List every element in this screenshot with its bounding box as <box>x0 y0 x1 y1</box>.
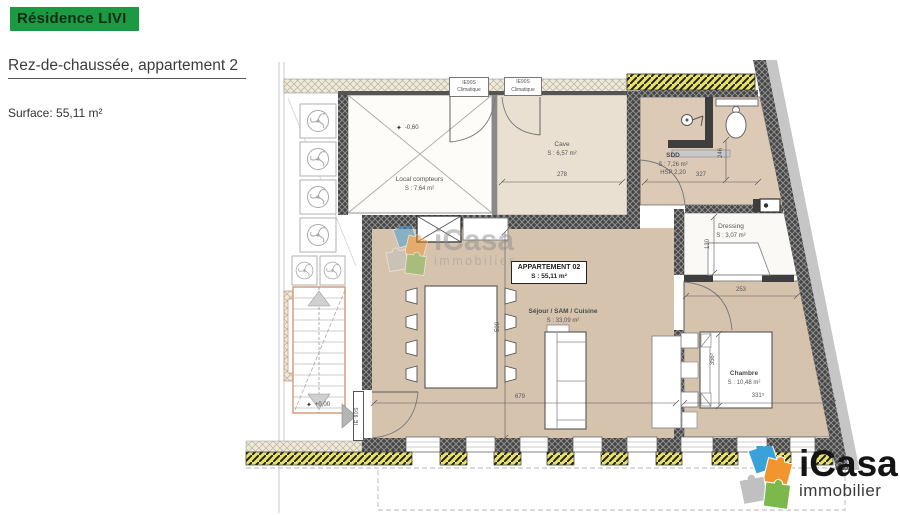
dim-sejour-height: 500 <box>495 312 501 342</box>
entry-door-label: IE 90S <box>353 391 364 441</box>
sofa-icon <box>545 325 586 429</box>
dim-sdd-height: 246 <box>718 138 724 168</box>
watermark: iCasa immobilier <box>384 226 516 276</box>
agency-logo: iCasa immobilier <box>736 446 898 510</box>
room-label-sejour: Séjour / SAM / Cuisine S : 33,09 m² <box>516 308 610 325</box>
logo-subtitle: immobilier <box>799 481 898 501</box>
level-marker-entrance: ✦ +0,00 <box>306 401 330 409</box>
dim-cave-width: 278 <box>542 172 582 178</box>
fan-icon <box>308 225 329 246</box>
room-label-cave: Cave S : 6,57 m² <box>527 141 597 158</box>
puzzle-logo-icon <box>384 226 430 276</box>
bench-icon <box>682 412 697 428</box>
sideboard-icon <box>652 336 681 428</box>
room-label-chambre: Chambre S : 10,48 m² <box>713 370 775 387</box>
dim-dressing-height: 130 <box>705 229 711 259</box>
fan-icon <box>324 262 341 279</box>
door-label-1: IE90SClimatique <box>449 77 489 97</box>
level-marker-icon: ✦ <box>306 401 312 409</box>
fan-icon <box>308 111 329 132</box>
apartment-label-box: APPARTEMENT 02 S : 55,11 m² <box>511 261 587 284</box>
dim-sejour-width: 679 <box>500 394 540 400</box>
level-marker-icon: ✦ <box>396 124 402 132</box>
room-label-local-compteurs: Local compteurs S : 7,64 m² <box>372 176 467 193</box>
watermark-subtitle: immobilier <box>434 254 516 268</box>
logo-brand: iCasa <box>799 446 898 481</box>
level-marker-local: ✦ -0,60 <box>396 124 419 132</box>
floor-plan-page: Résidence LIVI Rez-de-chaussée, appartem… <box>0 0 900 515</box>
dim-dressing-width: 253 <box>721 287 761 293</box>
puzzle-logo-icon <box>736 446 796 510</box>
door-label-2: IE90SClimatique <box>504 77 542 96</box>
dim-chambre-height: 356⁵ <box>710 344 716 374</box>
dim-sdd-width: 327 <box>681 172 721 178</box>
watermark-brand: iCasa <box>434 226 516 256</box>
meter-boxes <box>292 104 345 285</box>
fan-icon <box>308 149 329 170</box>
dim-chambre-width: 331⁵ <box>738 393 778 399</box>
fan-icon <box>296 262 313 279</box>
fan-icon <box>308 187 329 208</box>
